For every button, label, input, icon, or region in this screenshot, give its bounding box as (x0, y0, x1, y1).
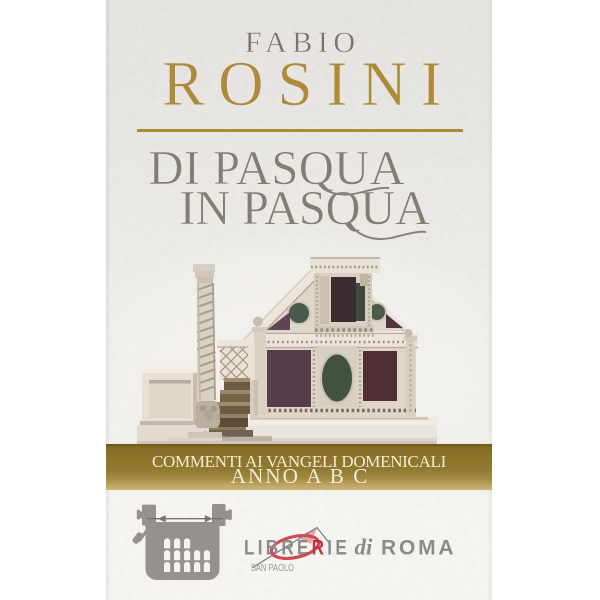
svg-text:di: di (355, 535, 374, 560)
svg-text:SAN PAOLO: SAN PAOLO (251, 562, 294, 574)
svg-text:ROMA: ROMA (381, 537, 456, 560)
